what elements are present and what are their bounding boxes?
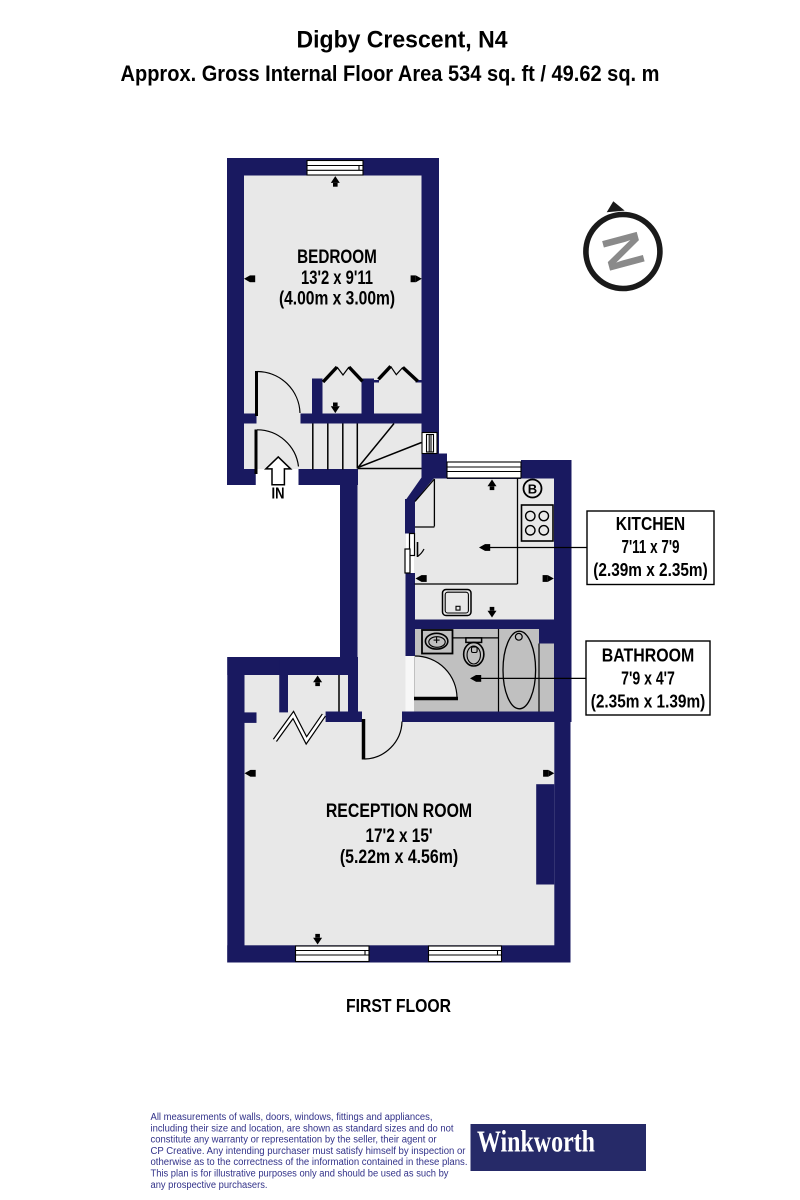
svg-text:otherwise as to the correctnes: otherwise as to the correctness of the i…	[151, 1157, 468, 1168]
svg-text:FIRST FLOOR: FIRST FLOOR	[346, 995, 451, 1016]
svg-text:IN: IN	[272, 486, 285, 503]
svg-text:(5.22m x 4.56m): (5.22m x 4.56m)	[340, 846, 458, 868]
svg-text:(4.00m x 3.00m): (4.00m x 3.00m)	[279, 288, 395, 310]
svg-text:All measurements of walls, doo: All measurements of walls, doors, window…	[151, 1112, 433, 1123]
svg-text:(2.39m x 2.35m): (2.39m x 2.35m)	[593, 559, 707, 580]
svg-text:This plan is for illustrative: This plan is for illustrative purposes o…	[151, 1169, 449, 1180]
svg-text:17'2 x 15': 17'2 x 15'	[366, 825, 433, 847]
svg-text:BATHROOM: BATHROOM	[602, 645, 695, 666]
svg-text:B: B	[528, 482, 537, 497]
svg-text:7'9 x 4'7: 7'9 x 4'7	[621, 668, 675, 689]
svg-text:constitute any warranty or rep: constitute any warranty or representatio…	[151, 1135, 438, 1146]
svg-text:BEDROOM: BEDROOM	[297, 246, 377, 268]
svg-text:13'2 x 9'11: 13'2 x 9'11	[301, 267, 373, 289]
svg-text:7'11 x 7'9: 7'11 x 7'9	[622, 536, 680, 557]
svg-text:including their size and locat: including their size and location, are s…	[151, 1123, 454, 1134]
svg-text:Approx. Gross Internal Floor A: Approx. Gross Internal Floor Area 534 sq…	[121, 61, 660, 86]
svg-text:Digby Crescent, N4: Digby Crescent, N4	[297, 27, 509, 54]
svg-text:Winkworth: Winkworth	[477, 1125, 595, 1159]
svg-text:RECEPTION ROOM: RECEPTION ROOM	[326, 800, 472, 822]
svg-text:KITCHEN: KITCHEN	[616, 513, 685, 534]
svg-text:any prospective purchasers.: any prospective purchasers.	[151, 1180, 268, 1191]
svg-text:CP Creative. Any intending pur: CP Creative. Any intending purchaser mus…	[151, 1146, 467, 1157]
svg-text:(2.35m x 1.39m): (2.35m x 1.39m)	[591, 691, 706, 712]
